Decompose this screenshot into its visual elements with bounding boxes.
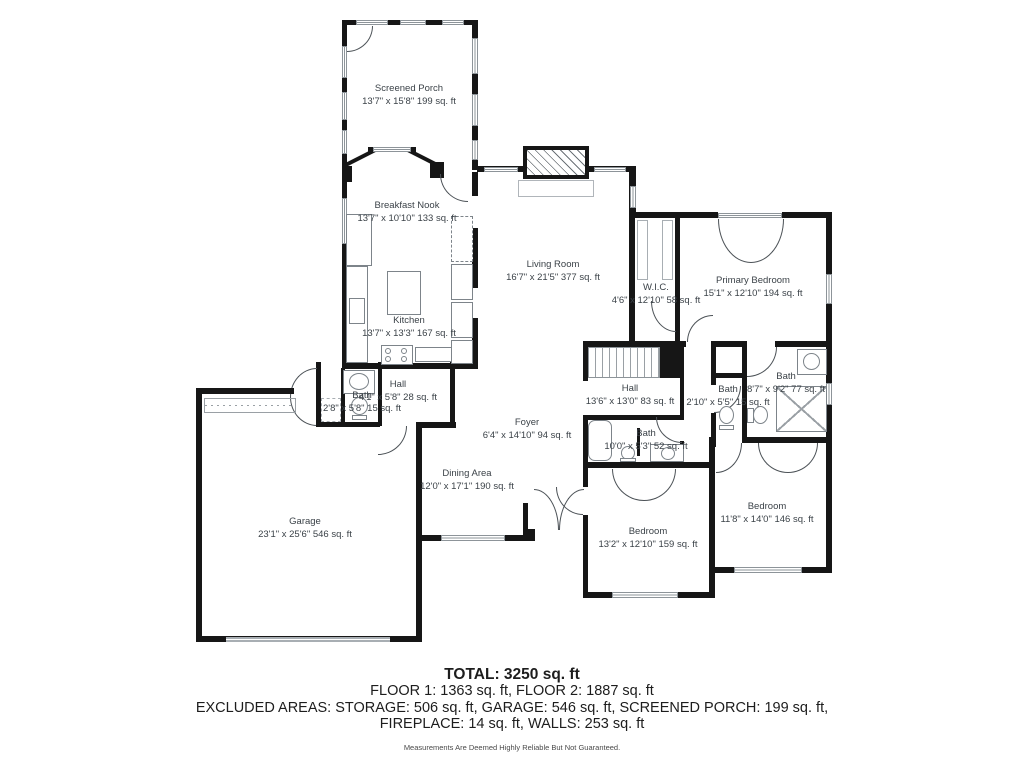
- room-dims: 6'4" x 14'10" 94 sq. ft: [483, 429, 572, 442]
- room-dims: 2'8" x 5'8" 15 sq. ft: [323, 402, 401, 415]
- wall: [196, 388, 202, 642]
- room-name: Kitchen: [362, 314, 456, 327]
- garage-door: [226, 637, 390, 642]
- room-dims: 23'1" x 25'6" 546 sq. ft: [258, 528, 352, 541]
- wall: [416, 426, 422, 642]
- floor-plan: Screened Porch 13'7" x 15'8" 199 sq. ft …: [0, 0, 1024, 768]
- garage-door-arc: [290, 368, 317, 397]
- window: [630, 186, 636, 208]
- wall: [316, 422, 380, 427]
- window: [594, 167, 626, 172]
- window: [734, 567, 802, 573]
- toilet-tank: [352, 415, 367, 420]
- room-name: Screened Porch: [362, 82, 456, 95]
- closet-door-arc: [612, 469, 644, 501]
- window: [612, 592, 678, 598]
- wall: [583, 462, 588, 487]
- room-dims: 4'6" x 12'10" 58 sq. ft: [612, 294, 701, 307]
- stove-burner: [401, 356, 407, 362]
- total-area: TOTAL: 3250 sq. ft: [0, 666, 1024, 683]
- room-dims: 15'1" x 12'10" 194 sq. ft: [703, 287, 802, 300]
- room-label-wic: W.I.C. 4'6" x 12'10" 58 sq. ft: [612, 281, 701, 307]
- room-label-bath-210: Bath 2'10" x 5'5" 15 sq. ft: [686, 383, 769, 409]
- room-dims: 2'10" x 5'5" 15 sq. ft: [686, 396, 769, 409]
- wall: [782, 212, 832, 218]
- toilet-tank: [719, 425, 734, 430]
- room-dims: 13'2" x 12'10" 159 sq. ft: [598, 538, 697, 551]
- wall: [416, 422, 456, 428]
- nook-door-arc: [440, 174, 468, 202]
- room-dims: 12'0" x 17'1" 190 sq. ft: [420, 480, 514, 493]
- stove: [381, 345, 413, 365]
- room-label-bedroom-132: Bedroom 13'2" x 12'10" 159 sq. ft: [598, 525, 697, 551]
- stove-burner: [385, 356, 391, 362]
- toilet-tank: [747, 408, 754, 423]
- room-dims: 16'7" x 21'5" 377 sq. ft: [506, 271, 600, 284]
- wall: [775, 341, 832, 347]
- area-summary: TOTAL: 3250 sq. ft FLOOR 1: 1363 sq. ft,…: [0, 666, 1024, 733]
- sink: [803, 353, 820, 370]
- stove-burner: [401, 348, 407, 354]
- window: [484, 167, 518, 172]
- room-name: Bath: [604, 427, 687, 440]
- kitchen-island: [387, 271, 421, 315]
- room-dims: 13'7" x 13'3" 167 sq. ft: [362, 327, 456, 340]
- floor-areas: FLOOR 1: 1363 sq. ft, FLOOR 2: 1887 sq. …: [0, 683, 1024, 700]
- room-label-primary-bedroom: Primary Bedroom 15'1" x 12'10" 194 sq. f…: [703, 274, 802, 300]
- closet-shelf: [662, 220, 673, 280]
- room-label-foyer: Foyer 6'4" x 14'10" 94 sq. ft: [483, 416, 572, 442]
- room-name: Garage: [258, 515, 352, 528]
- wall: [450, 362, 455, 427]
- french-door-arc: [751, 219, 784, 263]
- wall: [711, 341, 716, 385]
- window: [400, 20, 426, 25]
- disclaimer: Measurements Are Deemed Highly Reliable …: [0, 743, 1024, 752]
- room-label-living-room: Living Room 16'7" x 21'5" 377 sq. ft: [506, 258, 600, 284]
- room-name: Bedroom: [598, 525, 697, 538]
- wall: [713, 341, 744, 347]
- room-label-hall-upper: Hall 13'6" x 13'0" 83 sq. ft: [586, 382, 675, 408]
- stairs: [588, 347, 660, 378]
- room-name: Living Room: [506, 258, 600, 271]
- closet-door-arc: [644, 469, 676, 501]
- room-label-garage: Garage 23'1" x 25'6" 546 sq. ft: [258, 515, 352, 541]
- wall: [472, 172, 478, 196]
- wall: [709, 437, 715, 598]
- hearth: [518, 180, 594, 197]
- room-name: Primary Bedroom: [703, 274, 802, 287]
- room-label-bath-10: Bath 10'0" x 5'3" 52 sq. ft: [604, 427, 687, 453]
- room-name: Bath: [747, 370, 825, 383]
- room-dims: 10'0" x 5'3" 52 sq. ft: [604, 440, 687, 453]
- room-label-bedroom-118: Bedroom 11'8" x 14'0" 146 sq. ft: [720, 500, 813, 526]
- storage-shelf: [204, 398, 296, 413]
- room-dims: 11'8" x 14'0" 146 sq. ft: [720, 513, 813, 526]
- cabinet: [451, 340, 473, 364]
- primary-entry-arc: [687, 315, 713, 342]
- toilet-tank: [620, 458, 636, 462]
- wall: [583, 462, 714, 468]
- room-dims: 13'6" x 13'0" 83 sq. ft: [586, 395, 675, 408]
- bay-window: [373, 147, 411, 152]
- room-label-dining-area: Dining Area 12'0" x 17'1" 190 sq. ft: [420, 467, 514, 493]
- window: [472, 94, 478, 126]
- window: [356, 20, 388, 25]
- room-label-kitchen: Kitchen 13'7" x 13'3" 167 sq. ft: [362, 314, 456, 340]
- fireplace: [523, 146, 589, 179]
- bedroom-door-arc: [716, 443, 742, 473]
- closet-door-arc: [758, 443, 788, 473]
- room-dims: 13'7" x 15'8" 199 sq. ft: [362, 95, 456, 108]
- stove-burner: [385, 348, 391, 354]
- window: [342, 92, 347, 120]
- wall: [680, 341, 684, 415]
- room-name: Dining Area: [420, 467, 514, 480]
- window: [441, 535, 505, 541]
- room-label-bath-left: Bath 2'8" x 5'8" 15 sq. ft: [323, 389, 401, 415]
- hall-door-arc: [378, 426, 407, 455]
- window: [442, 20, 464, 25]
- french-door-arc: [718, 219, 751, 263]
- closet-shelf: [637, 220, 648, 280]
- bedroom-door-arc: [556, 487, 583, 515]
- french-door-sill: [718, 213, 782, 218]
- window: [472, 38, 478, 74]
- window: [826, 274, 832, 304]
- window: [472, 140, 478, 160]
- refrigerator: [451, 264, 473, 300]
- excluded-areas-line1: EXCLUDED AREAS: STORAGE: 506 sq. ft, GAR…: [0, 700, 1024, 717]
- front-door-arc: [534, 489, 559, 530]
- room-label-screened-porch: Screened Porch 13'7" x 15'8" 199 sq. ft: [362, 82, 456, 108]
- room-name: Bedroom: [720, 500, 813, 513]
- excluded-areas-line2: FIREPLACE: 14 sq. ft, WALLS: 253 sq. ft: [0, 716, 1024, 733]
- room-dims: 13'7" x 10'10" 133 sq. ft: [357, 212, 456, 225]
- window: [342, 130, 347, 154]
- wall: [629, 212, 635, 347]
- room-name: Bath: [686, 383, 769, 396]
- closet-door-arc: [788, 443, 818, 473]
- wall: [629, 212, 718, 218]
- room-label-breakfast-nook: Breakfast Nook 13'7" x 10'10" 133 sq. ft: [357, 199, 456, 225]
- room-name: Hall: [586, 382, 675, 395]
- room-name: Foyer: [483, 416, 572, 429]
- wall: [660, 347, 680, 378]
- room-name: W.I.C.: [612, 281, 701, 294]
- porch-door-arc: [347, 26, 373, 52]
- room-name: Bath: [323, 389, 401, 402]
- room-name: Breakfast Nook: [357, 199, 456, 212]
- wall: [196, 388, 294, 394]
- wall: [583, 515, 588, 598]
